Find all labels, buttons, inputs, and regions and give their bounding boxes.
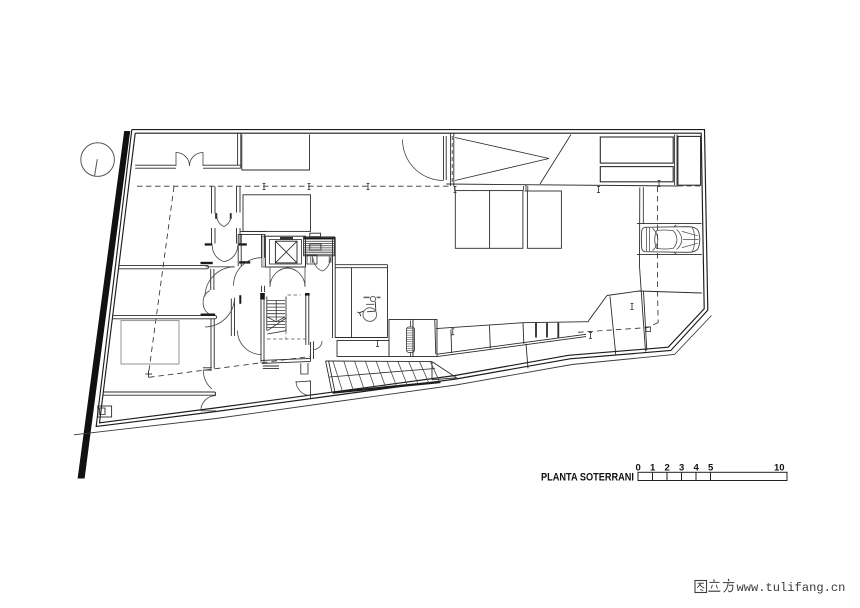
- svg-text:PLANTA SOTERRANI: PLANTA SOTERRANI: [541, 472, 634, 484]
- svg-text:0: 0: [636, 463, 641, 474]
- svg-text:2: 2: [665, 463, 670, 474]
- svg-text:10: 10: [774, 463, 785, 474]
- svg-text:www.tulifang.cn: www.tulifang.cn: [737, 581, 846, 595]
- svg-text:4: 4: [694, 463, 700, 474]
- svg-text:1: 1: [650, 463, 656, 474]
- svg-text:5: 5: [708, 463, 714, 474]
- svg-text:3: 3: [679, 463, 684, 474]
